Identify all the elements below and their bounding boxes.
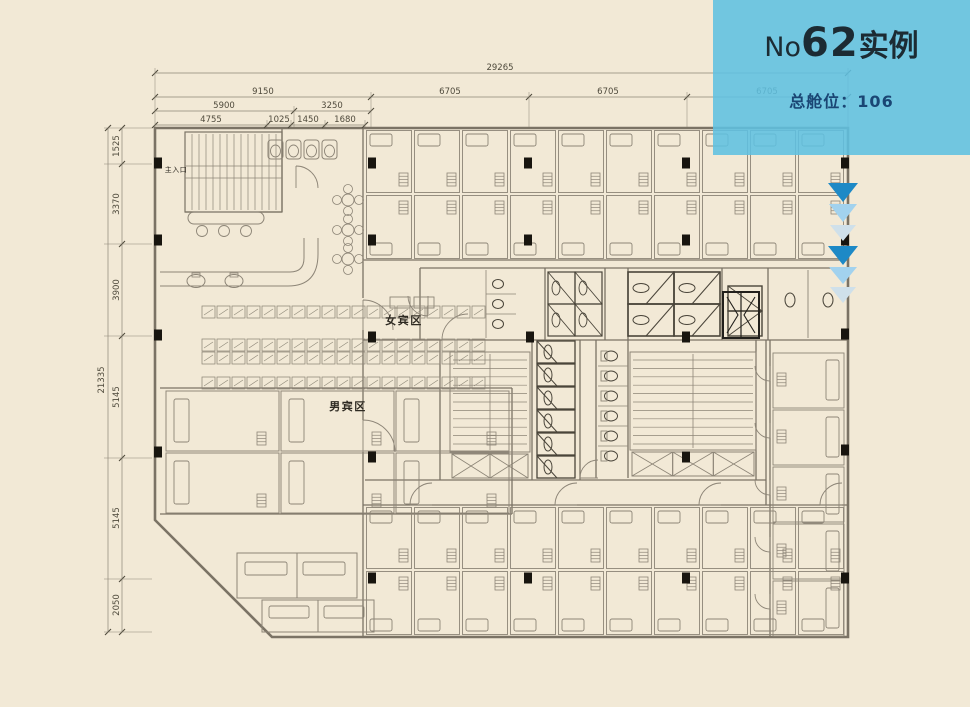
dim-left: 5145 bbox=[112, 507, 122, 529]
dim-total-height: 21335 bbox=[97, 366, 107, 393]
scroll-arrow-icon[interactable] bbox=[830, 287, 856, 303]
dim-left: 3900 bbox=[112, 279, 122, 301]
dim-top: 1680 bbox=[334, 115, 356, 125]
wet-rooms bbox=[486, 270, 833, 478]
scroll-arrow-icon[interactable] bbox=[828, 246, 858, 265]
reception-counter bbox=[160, 238, 318, 286]
scroll-arrow-icon[interactable] bbox=[829, 267, 857, 284]
case-title: No62实例 bbox=[713, 26, 970, 68]
dim-left: 2050 bbox=[112, 594, 122, 616]
dim-left: 3370 bbox=[112, 193, 122, 215]
dim-top: 1025 bbox=[268, 115, 290, 125]
locker-rows bbox=[202, 306, 485, 389]
main-entrance-label: 主入口 bbox=[165, 165, 188, 174]
capacity-label: 总舱位： bbox=[789, 92, 857, 111]
dim-top: 6705 bbox=[597, 87, 619, 97]
male-area-label: 男宾区 bbox=[329, 399, 367, 413]
stairs bbox=[185, 132, 756, 478]
room-labels: 主入口 女宾区 男宾区 bbox=[165, 165, 423, 413]
case-title-suffix: 实例 bbox=[859, 29, 919, 64]
dim-total-width: 29265 bbox=[486, 63, 513, 73]
dim-top: 6705 bbox=[439, 87, 461, 97]
case-title-prefix: No bbox=[764, 32, 801, 63]
scroll-arrow-icon[interactable] bbox=[829, 204, 857, 222]
capacity-value: 106 bbox=[857, 92, 893, 111]
dim-top: 5900 bbox=[213, 101, 235, 111]
page: 29265 9150 6705 6705 6705 5900 3250 4755… bbox=[0, 0, 970, 707]
scroll-arrow-icon[interactable] bbox=[830, 225, 856, 241]
female-area-label: 女宾区 bbox=[385, 313, 423, 327]
dim-left: 5145 bbox=[112, 386, 122, 408]
capacity-text: 总舱位：106 bbox=[713, 88, 970, 112]
dim-top: 9150 bbox=[252, 87, 274, 97]
furniture bbox=[187, 140, 434, 308]
case-banner: No62实例 总舱位：106 bbox=[713, 0, 970, 155]
columns bbox=[154, 158, 849, 584]
dim-top: 3250 bbox=[321, 101, 343, 111]
dim-left: 1525 bbox=[112, 135, 122, 157]
dim-top: 4755 bbox=[200, 115, 222, 125]
dim-top: 1450 bbox=[297, 115, 319, 125]
case-number: 62 bbox=[801, 20, 859, 66]
